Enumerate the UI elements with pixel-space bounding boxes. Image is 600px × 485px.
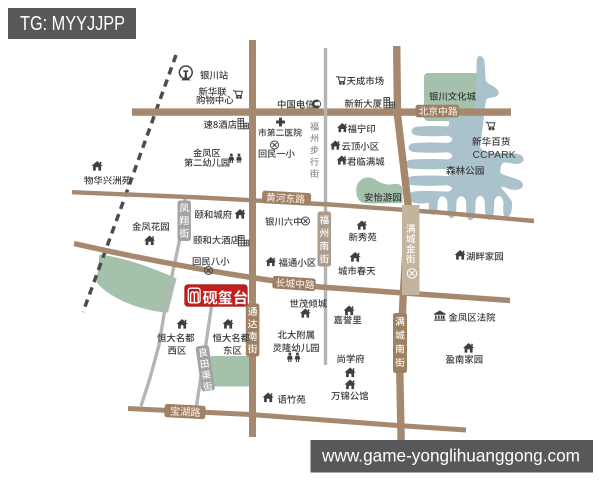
svg-text:www.game-yonglihuanggong.com: www.game-yonglihuanggong.com <box>321 446 580 466</box>
svg-text:CCPARK: CCPARK <box>473 150 516 161</box>
svg-text:TG: MYYJJPP: TG: MYYJJPP <box>20 13 125 35</box>
